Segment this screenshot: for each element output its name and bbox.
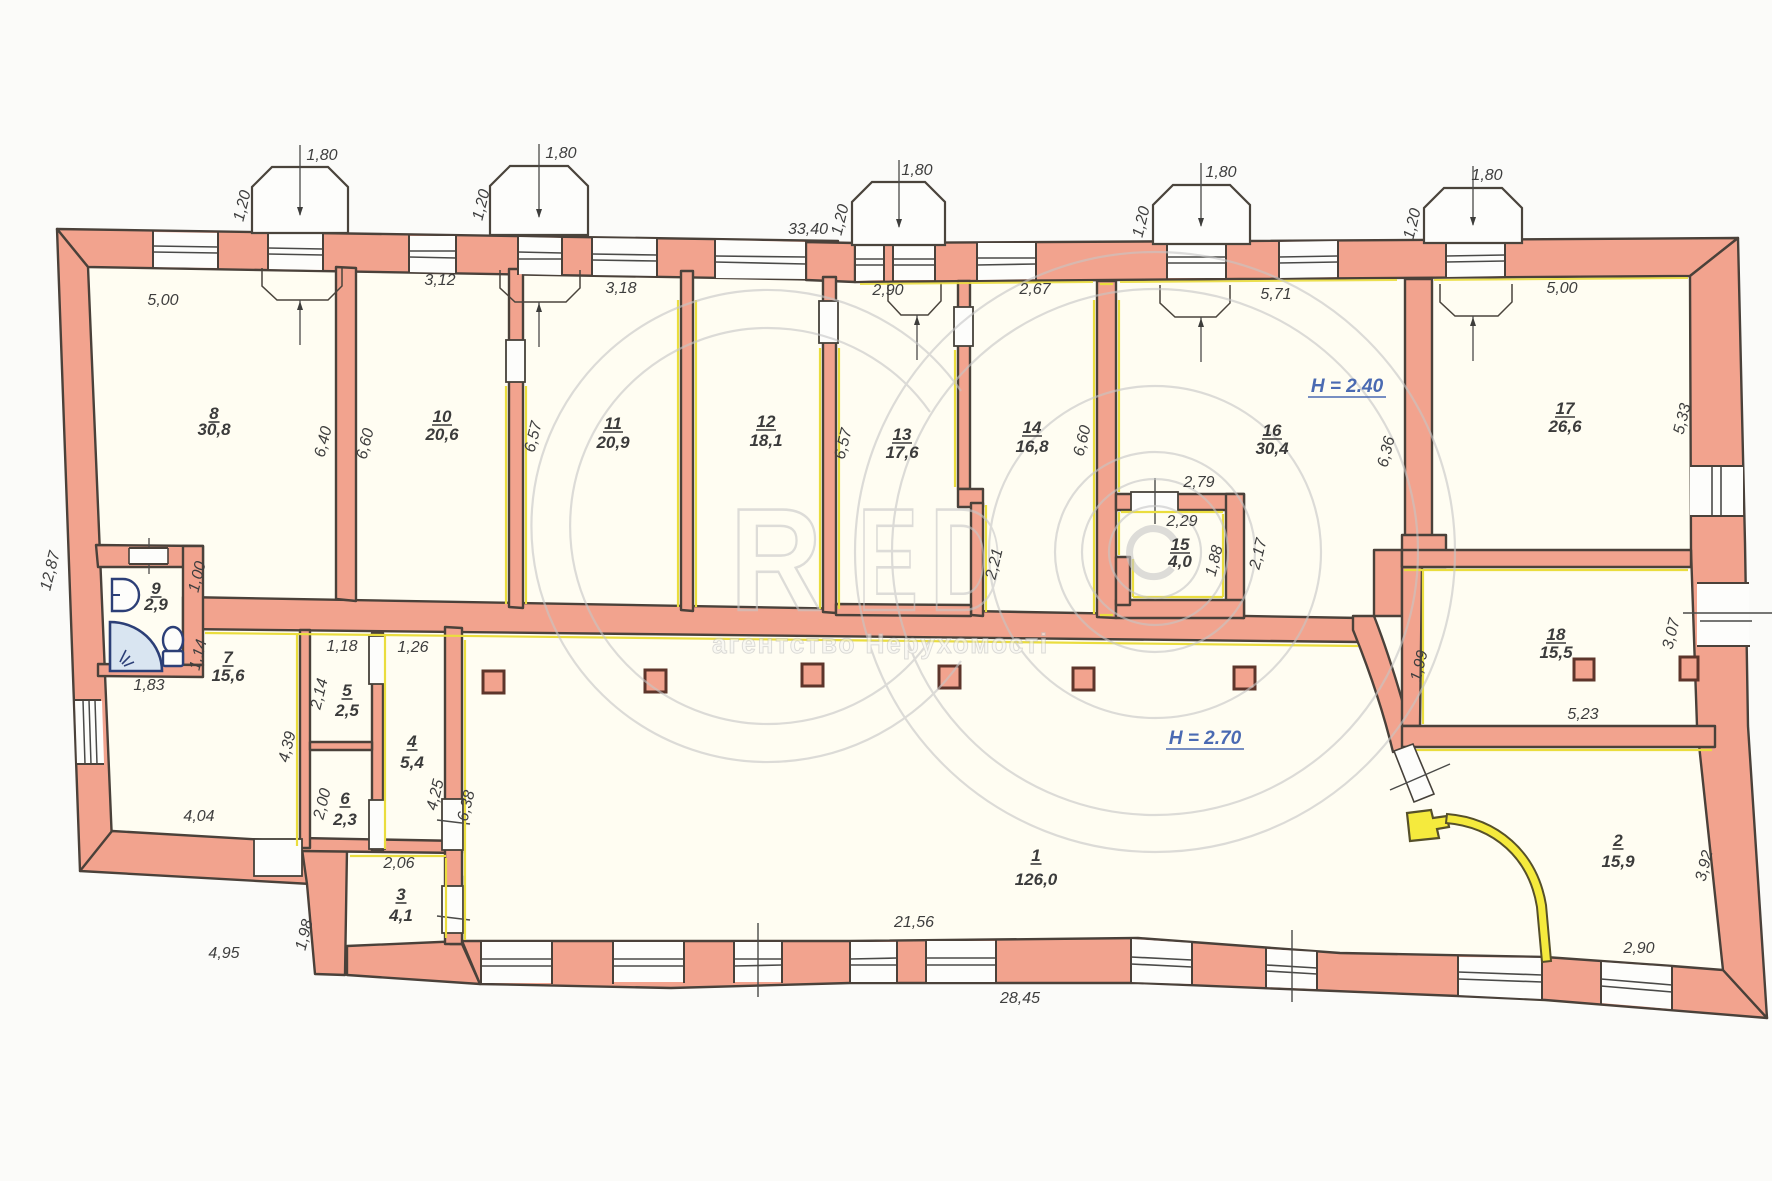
svg-text:4: 4 [406, 732, 417, 751]
svg-text:1,26: 1,26 [397, 639, 428, 656]
svg-text:2,90: 2,90 [1622, 940, 1654, 957]
svg-text:H = 2.70: H = 2.70 [1169, 728, 1242, 749]
svg-text:21,56: 21,56 [893, 914, 934, 931]
svg-text:2,79: 2,79 [1182, 474, 1214, 491]
svg-text:2,67: 2,67 [1018, 281, 1051, 298]
svg-text:R: R [730, 478, 822, 641]
svg-text:2,29: 2,29 [1165, 513, 1197, 530]
svg-text:30,4: 30,4 [1255, 439, 1289, 458]
svg-text:5,00: 5,00 [1546, 280, 1577, 297]
svg-text:2,06: 2,06 [382, 855, 414, 872]
svg-text:1,80: 1,80 [901, 162, 932, 179]
svg-text:1: 1 [1031, 846, 1040, 865]
svg-text:15,6: 15,6 [211, 666, 245, 685]
svg-text:15,9: 15,9 [1601, 852, 1635, 871]
svg-text:1,80: 1,80 [1205, 164, 1236, 181]
svg-text:20,9: 20,9 [595, 433, 630, 452]
svg-text:33,40: 33,40 [788, 221, 828, 238]
svg-text:10: 10 [433, 407, 452, 426]
svg-text:агентство Нерухомості: агентство Нерухомості [712, 628, 1049, 659]
svg-text:H = 2.40: H = 2.40 [1311, 376, 1384, 397]
svg-text:16: 16 [1263, 421, 1282, 440]
svg-text:18: 18 [1547, 625, 1566, 644]
svg-text:1,80: 1,80 [306, 147, 337, 164]
svg-text:30,8: 30,8 [197, 420, 231, 439]
svg-text:11: 11 [604, 414, 622, 433]
svg-text:4,04: 4,04 [183, 808, 214, 825]
svg-text:126,0: 126,0 [1015, 870, 1058, 889]
svg-text:E: E [858, 478, 918, 641]
svg-text:6: 6 [340, 789, 350, 808]
svg-text:5,23: 5,23 [1567, 706, 1598, 723]
svg-text:1,18: 1,18 [326, 638, 357, 655]
svg-text:15,5: 15,5 [1539, 643, 1573, 662]
svg-text:5,00: 5,00 [147, 292, 178, 309]
svg-text:3: 3 [396, 885, 406, 904]
svg-text:3,12: 3,12 [424, 272, 455, 289]
svg-text:5: 5 [342, 681, 352, 700]
svg-text:1,80: 1,80 [545, 145, 576, 162]
svg-text:1,83: 1,83 [133, 677, 164, 694]
svg-text:7: 7 [223, 648, 234, 667]
svg-text:13: 13 [893, 425, 912, 444]
svg-text:5,4: 5,4 [400, 753, 424, 772]
svg-text:2,90: 2,90 [871, 282, 903, 299]
svg-text:1,80: 1,80 [1471, 167, 1502, 184]
svg-text:2,5: 2,5 [334, 701, 359, 720]
svg-text:2,3: 2,3 [332, 810, 357, 829]
svg-text:14: 14 [1023, 418, 1042, 437]
svg-text:5,71: 5,71 [1260, 286, 1291, 303]
svg-text:2,9: 2,9 [143, 595, 168, 614]
svg-text:17: 17 [1556, 399, 1576, 418]
svg-text:28,45: 28,45 [999, 990, 1040, 1007]
svg-text:2: 2 [1612, 831, 1623, 850]
svg-text:12: 12 [757, 412, 776, 431]
svg-text:4,0: 4,0 [1167, 552, 1192, 571]
svg-text:17,6: 17,6 [885, 443, 919, 462]
svg-text:3,18: 3,18 [605, 280, 636, 297]
svg-text:18,1: 18,1 [749, 431, 782, 450]
svg-text:4,1: 4,1 [388, 906, 413, 925]
svg-text:26,6: 26,6 [1547, 417, 1582, 436]
svg-text:4,95: 4,95 [208, 945, 239, 962]
svg-text:20,6: 20,6 [424, 425, 459, 444]
svg-text:16,8: 16,8 [1015, 437, 1049, 456]
